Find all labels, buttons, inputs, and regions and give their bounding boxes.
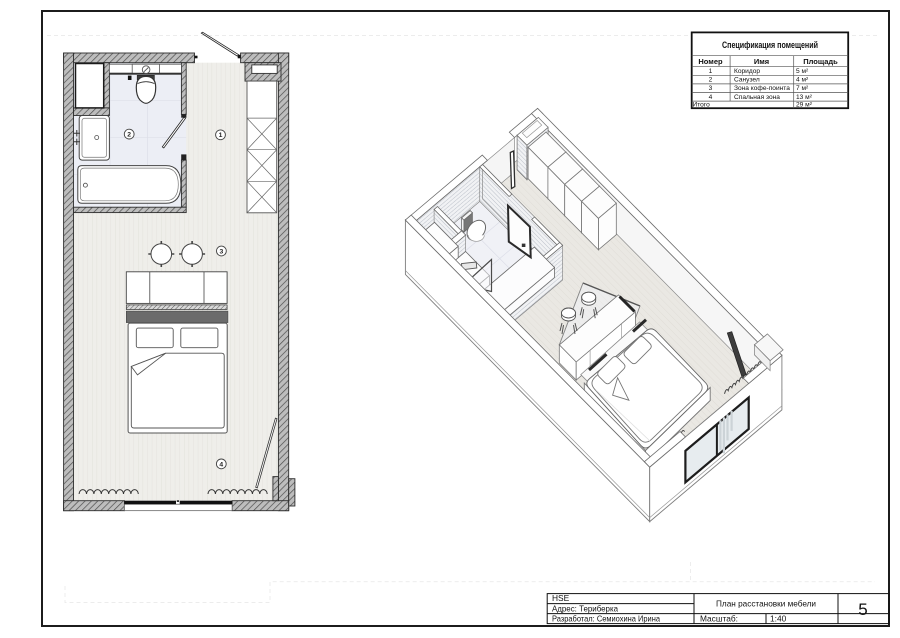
svg-text:Спецификация помещений: Спецификация помещений	[722, 40, 818, 50]
svg-text:Санузел: Санузел	[734, 77, 760, 84]
svg-text:1: 1	[709, 68, 713, 75]
svg-text:Имя: Имя	[754, 57, 769, 66]
svg-text:4 м²: 4 м²	[796, 77, 809, 84]
svg-text:План расстановки мебели: План расстановки мебели	[716, 598, 816, 608]
svg-text:3: 3	[709, 85, 713, 92]
svg-text:Разработал: Семиохина Ирина: Разработал: Семиохина Ирина	[552, 614, 660, 624]
svg-text:2: 2	[127, 132, 131, 139]
svg-text:13 м²: 13 м²	[796, 94, 813, 101]
svg-text:Адрес: Териберка: Адрес: Териберка	[552, 603, 618, 613]
svg-text:1: 1	[219, 132, 223, 139]
svg-text:Итого: Итого	[693, 102, 711, 109]
svg-text:29 м²: 29 м²	[796, 102, 813, 109]
svg-text:Номер: Номер	[698, 57, 723, 66]
svg-text:5: 5	[858, 600, 867, 619]
svg-text:3: 3	[220, 248, 224, 255]
svg-text:4: 4	[709, 94, 713, 101]
svg-text:2: 2	[709, 77, 713, 84]
svg-text:Площадь: Площадь	[803, 57, 838, 66]
svg-text:4: 4	[219, 461, 223, 468]
svg-text:1:40: 1:40	[770, 614, 787, 624]
svg-text:Зона кофе-поинта: Зона кофе-поинта	[734, 85, 790, 92]
svg-text:Спальная зона: Спальная зона	[734, 94, 780, 101]
svg-text:7 м²: 7 м²	[796, 85, 809, 92]
svg-text:Коридор: Коридор	[734, 68, 760, 75]
svg-text:Масштаб:: Масштаб:	[700, 614, 738, 624]
svg-text:HSE: HSE	[552, 593, 570, 603]
svg-text:5 м²: 5 м²	[796, 68, 809, 75]
